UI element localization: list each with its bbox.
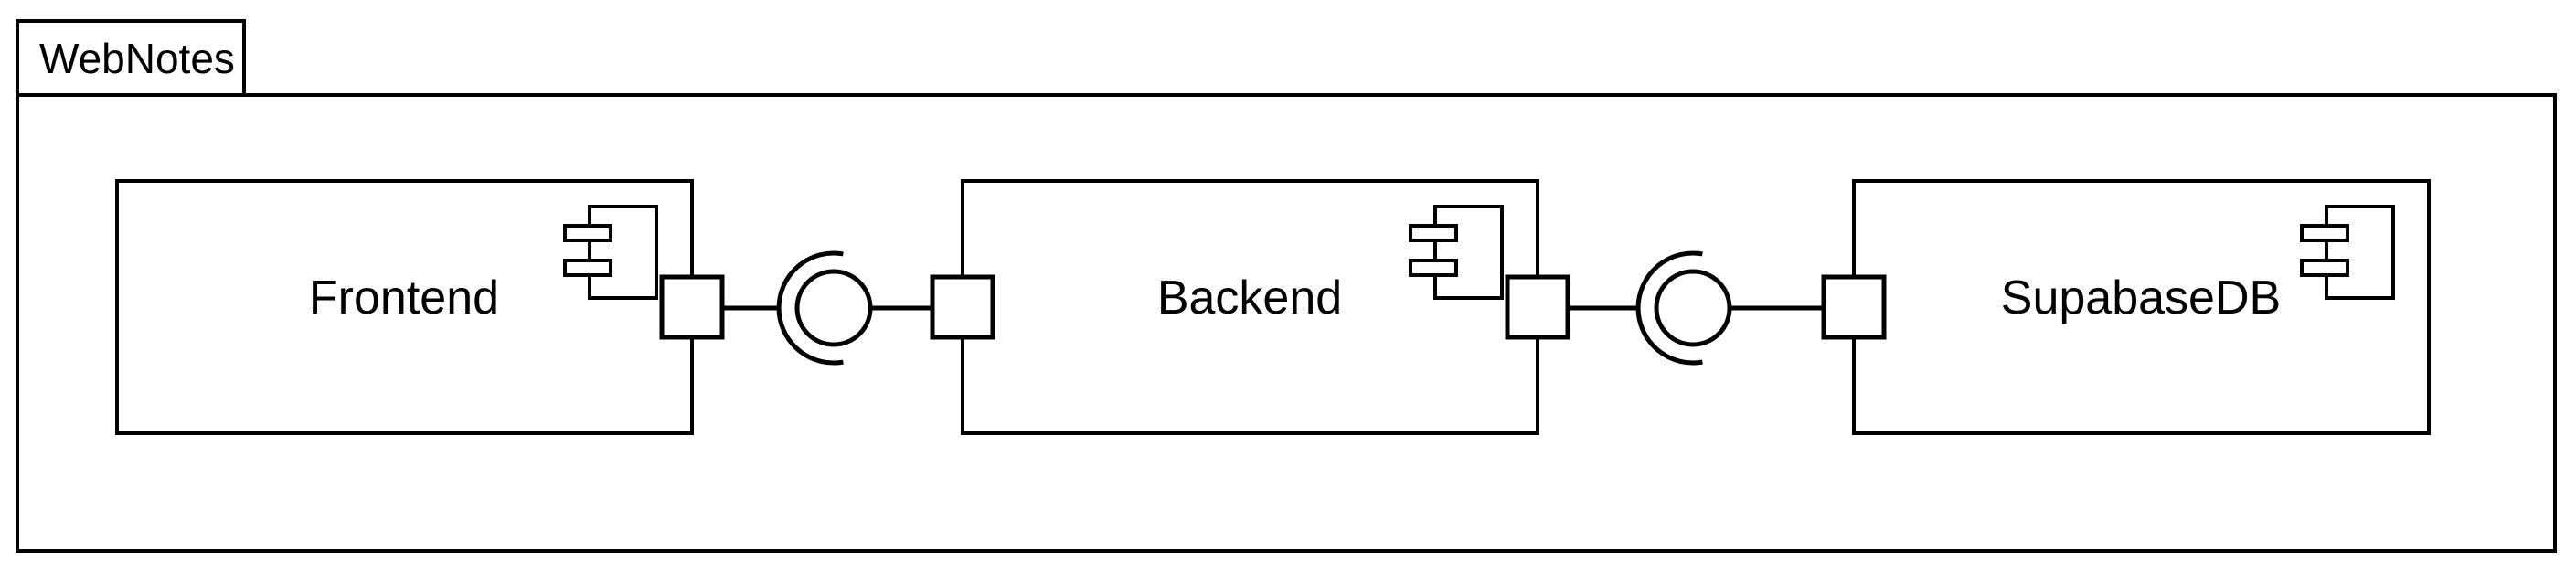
- component-icon-tab-bottom: [565, 260, 611, 275]
- uml-component-diagram: WebNotes Frontend Backend: [0, 0, 2576, 574]
- port-backend-right: [1507, 277, 1568, 337]
- package-tab-label: WebNotes: [39, 35, 235, 82]
- component-icon-body: [2326, 207, 2393, 298]
- component-supabasedb: SupabaseDB: [1824, 181, 2429, 433]
- port-frontend-right: [662, 277, 722, 337]
- component-frontend: Frontend: [117, 181, 722, 433]
- component-icon-tab-top: [2302, 226, 2347, 240]
- ball-interface-icon: [797, 271, 870, 345]
- component-icon-tab-bottom: [1410, 260, 1456, 275]
- ball-interface-icon: [1656, 271, 1730, 345]
- port-backend-left: [932, 277, 993, 337]
- component-label: Backend: [1157, 271, 1342, 324]
- port-supabasedb-left: [1824, 277, 1884, 337]
- component-icon-tab-bottom: [2302, 260, 2347, 275]
- diagram-canvas: WebNotes Frontend Backend: [0, 0, 2576, 574]
- component-label: Frontend: [309, 271, 499, 324]
- component-backend: Backend: [932, 181, 1568, 433]
- component-icon-tab-top: [1410, 226, 1456, 240]
- component-icon-body: [590, 207, 656, 298]
- component-icon-body: [1435, 207, 1502, 298]
- component-label: SupabaseDB: [2001, 271, 2281, 324]
- component-icon-tab-top: [565, 226, 611, 240]
